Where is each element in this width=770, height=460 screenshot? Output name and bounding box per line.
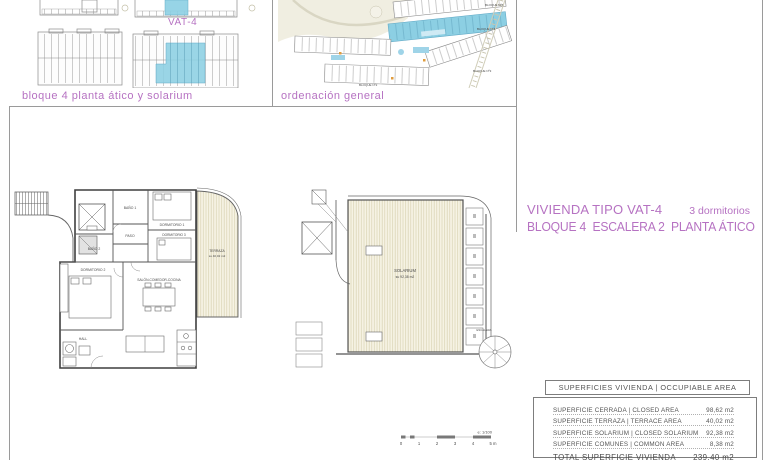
room-label-dorm2: DORMITORIO 2 (81, 268, 106, 272)
areas-table: SUPERFICIE CERRADA | CLOSED AREA 98,62 m… (533, 397, 757, 458)
caption-block-plan: bloque 4 planta ático y solarium (22, 90, 193, 102)
scale-tick: 1 (418, 441, 421, 446)
room-label-salon: SALÓN-COMEDOR-COCINA (137, 277, 181, 282)
row-label: SUPERFICIE CERRADA | CLOSED AREA (553, 407, 679, 414)
table-row: SUPERFICIE CERRADA | CLOSED AREA 98,62 m… (553, 403, 734, 415)
elevator-icon (302, 190, 348, 254)
bed-dorm3 (157, 238, 191, 260)
sofa (126, 336, 164, 352)
spiral-stair-icon (479, 336, 511, 368)
row-label: SUPERFICIE TERRAZA | TERRACE AREA (553, 418, 682, 425)
floor-plan-drawing: BAÑO 1 PASO BAÑO 2 DORMITORIO 1 DORMITOR… (13, 182, 265, 374)
block-location-title: BLOQUE 4 ESCALERA 2 PLANTA ÁTICO (527, 220, 743, 234)
caption-site-plan: ordenación general (281, 90, 384, 102)
hall-appliances (63, 342, 90, 366)
scale-tick: 5 m (490, 441, 497, 446)
highlighted-solarium-unit (165, 0, 188, 15)
site-block-label: BLOQUE Nº2 (359, 83, 378, 87)
row-value: 92,38 m2 (706, 430, 734, 437)
room-label-hall: HALL (79, 337, 88, 341)
areas-table-header: SUPERFICIES VIVIENDA | OCCUPIABLE AREA (545, 380, 750, 395)
room-label-bano2: BAÑO 2 (88, 246, 101, 251)
bed-dorm1 (153, 192, 191, 220)
table-row: SUPERFICIE TERRAZA | TERRACE AREA 40,02 … (553, 415, 734, 427)
room-label-paso: PASO (125, 234, 135, 238)
block-miniplans-drawing (9, 0, 273, 88)
stairs-icon (15, 192, 73, 262)
total-label: TOTAL SUPERFICIE VIVIENDA (553, 453, 676, 460)
scale-segments (401, 436, 491, 439)
solarium-area: su 92,38 m2 (396, 275, 415, 279)
scale-tick: 0 (400, 441, 403, 446)
kitchen-counter (177, 330, 196, 366)
unit-tag: VAT-4 (168, 17, 197, 28)
solarium-label: SOLARIUM (394, 268, 416, 273)
bedrooms-label: 3 dormitorios (689, 205, 750, 217)
scale-tick: 4 (472, 441, 475, 446)
left-sheet-border (9, 106, 10, 460)
row-value: 40,02 m2 (706, 418, 734, 425)
row-value: 98,62 m2 (706, 407, 734, 414)
storage-boxes (296, 322, 322, 367)
table-total-row: TOTAL SUPERFICIE VIVIENDA 239,40 m2 (553, 449, 734, 460)
dining-table (143, 283, 175, 311)
row-label: SUPERFICIE COMUNES | COMMON AREA (553, 441, 684, 448)
site-plan-drawing: BLOQUE Nº5 BLOQUE Nº4 BLOQUE Nº3 BLOQUE … (273, 0, 516, 88)
solarium-plan-drawing: SOLARIUM su 92,38 m2 ESCALERA (288, 182, 523, 377)
room-area-terraza: su 40,02 m2 (209, 254, 226, 258)
terrain (278, 0, 408, 42)
atico-plan-building-b (133, 31, 238, 88)
pergola-posts (466, 208, 483, 345)
room-label-dorm3: DORMITORIO 3 (162, 233, 186, 237)
scale-bar: e: 1/100 0 1 2 3 4 5 m (395, 429, 510, 449)
room-label-terraza: TERRAZA (209, 249, 225, 253)
site-block-label: BLOQUE Nº3 (473, 69, 492, 73)
site-block-label: BLOQUE Nº4 (477, 27, 496, 31)
row-label: SUPERFICIE SOLARIUM | CLOSED SOLARIUM (553, 430, 699, 437)
top-strip-border (9, 106, 517, 107)
stair-label: ESCALERA (477, 328, 492, 332)
scale-tick: 3 (454, 441, 457, 446)
table-row: SUPERFICIE SOLARIUM | CLOSED SOLARIUM 92… (553, 426, 734, 438)
room-label-bano1: BAÑO 1 (124, 205, 137, 210)
plan-sheet: VAT-4 bloque 4 planta ático y solarium (0, 0, 770, 460)
room-label-dorm1: DORMITORIO 1 (160, 223, 185, 227)
row-value: 8,38 m2 (710, 441, 734, 448)
right-sheet-border (762, 0, 763, 460)
site-block-label: BLOQUE Nº5 (485, 3, 504, 7)
dwelling-type-title: VIVIENDA TIPO VAT-4 (527, 202, 662, 217)
table-row: SUPERFICIE COMUNES | COMMON AREA 8,38 m2 (553, 438, 734, 450)
roof-plan-building-a (40, 0, 118, 15)
bed-dorm2 (60, 264, 111, 318)
total-value: 239,40 m2 (693, 453, 734, 460)
terraza-deck (197, 188, 241, 318)
building-row-1 (294, 36, 390, 55)
scale-tick: 2 (436, 441, 439, 446)
atico-plan-building-a (38, 29, 122, 85)
scale-note: e: 1/100 (478, 430, 493, 435)
roof-plan-building-b (122, 0, 255, 17)
title-block: VIVIENDA TIPO VAT-4 3 dormitorios BLOQUE… (527, 202, 750, 234)
